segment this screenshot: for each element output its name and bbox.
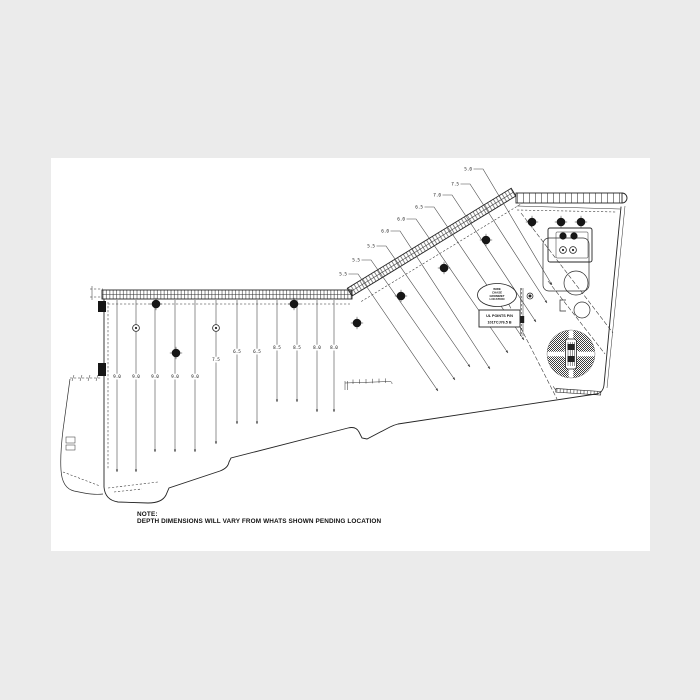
fastener-head <box>353 319 362 328</box>
plug-icon <box>559 232 566 239</box>
technical-drawing: 9.09.09.09.09.07.56.56.58.58.58.08.0 5.5… <box>0 0 700 700</box>
ul-points-badge: UL POINTS P/N 101TCJ76.5 B <box>479 310 520 327</box>
drawing-canvas: 9.09.09.09.09.07.56.56.58.58.58.08.0 5.5… <box>0 0 700 700</box>
fastener-icon <box>395 290 407 302</box>
glove-box <box>543 228 592 291</box>
left-flap <box>61 375 158 494</box>
right-rail-dashed <box>517 210 617 212</box>
right-rail-bar <box>516 193 622 203</box>
depth-label: 7.0 <box>433 193 441 199</box>
fastener-head <box>440 264 449 273</box>
wire-grommet-badge: WIRE CHASE GROMMET LOCATION <box>478 284 517 307</box>
dimension-line: 9.0 <box>170 300 180 452</box>
dimension-line: 8.5 <box>272 300 282 402</box>
panel-right-edge-outer <box>607 206 625 388</box>
depth-label: 5.5 <box>339 272 347 278</box>
floor-leader-dashed <box>108 482 158 492</box>
flap-bracket-top <box>66 437 75 443</box>
flap-outline <box>61 379 103 494</box>
depth-label: 7.5 <box>451 182 459 188</box>
depth-label: 6.5 <box>253 349 261 355</box>
fastener-head <box>528 218 537 227</box>
depth-label: 8.0 <box>330 345 338 351</box>
fastener-head <box>290 300 299 309</box>
note: NOTE: DEPTH DIMENSIONS WILL VARY FROM WH… <box>137 511 381 525</box>
grommet-center <box>572 249 574 251</box>
speaker-terminal-bottom <box>568 356 575 362</box>
speaker-terminal-top <box>568 344 575 350</box>
fastener-head <box>152 300 161 309</box>
ruler-ticks <box>353 378 386 384</box>
flap-bracket-bottom <box>66 445 75 450</box>
depth-label: 9.0 <box>113 374 121 380</box>
grommet-center <box>562 249 564 251</box>
dimension-line: 9.0 <box>150 300 160 452</box>
grommet-icon <box>133 325 140 332</box>
fastener-icon <box>150 298 162 310</box>
cup-holder-circle <box>564 271 588 295</box>
note-title: NOTE: <box>137 511 381 518</box>
depth-label: 6.5 <box>415 205 423 211</box>
depth-label: 5.5 <box>352 258 360 264</box>
depth-label: 9.0 <box>171 374 179 380</box>
fastener-icon <box>288 298 300 310</box>
ruler-body <box>345 381 392 390</box>
badge-line: 101TCJ76.5 B <box>488 321 512 325</box>
fastener-head <box>482 236 491 245</box>
scale-ruler <box>345 378 392 390</box>
dimension-line: 6.5 <box>252 300 262 424</box>
dimension-line: 6.0 <box>381 229 490 369</box>
fastener-icon <box>438 262 450 274</box>
fastener-icon <box>351 317 363 329</box>
left-dimension-group: 9.09.09.09.09.07.56.56.58.58.58.08.0 <box>112 300 339 472</box>
top-right-rail <box>516 193 627 212</box>
dimension-line: 5.0 <box>464 167 552 285</box>
dimension-line: 7.5 <box>211 300 221 444</box>
fastener-icon <box>170 347 182 359</box>
depth-label: 7.5 <box>212 357 220 363</box>
dimension-line: 8.5 <box>292 300 302 402</box>
depth-label: 5.5 <box>367 244 375 250</box>
depth-label: 8.5 <box>293 345 301 351</box>
dim-leader <box>391 231 491 369</box>
dim-leader <box>474 169 553 285</box>
dimension-line: 8.0 <box>329 300 339 412</box>
right-rail-inner-line <box>517 206 620 209</box>
fastener-head <box>172 349 181 358</box>
dimension-line: 9.0 <box>112 300 122 472</box>
badge-line: UL POINTS P/N <box>486 314 513 318</box>
edge-clip-bottom <box>98 363 106 376</box>
note-body: DEPTH DIMENSIONS WILL VARY FROM WHATS SH… <box>137 518 381 525</box>
grommet-icon <box>560 247 567 254</box>
depth-label: 6.0 <box>397 217 405 223</box>
fastener-head <box>577 218 586 227</box>
depth-label: 9.0 <box>191 374 199 380</box>
grommet-icon <box>570 247 577 254</box>
panel-outline-path <box>104 207 621 503</box>
dimension-line: 8.0 <box>312 300 322 412</box>
dimension-line: 9.0 <box>190 300 200 452</box>
plug-icon <box>570 232 577 239</box>
small-circle-cutout <box>574 302 590 318</box>
depth-label: 5.0 <box>464 167 472 173</box>
fastener-icon <box>575 216 587 228</box>
right-panel <box>500 213 613 399</box>
depth-label: 8.0 <box>313 345 321 351</box>
depth-label: 6.5 <box>233 349 241 355</box>
grommet-icon <box>213 325 220 332</box>
grommet-center <box>215 327 217 329</box>
depth-label: 9.0 <box>132 374 140 380</box>
dimension-line: 6.5 <box>232 300 242 424</box>
fastener-icon <box>480 234 492 246</box>
fold-line-1 <box>521 213 613 333</box>
datum-center <box>529 295 532 298</box>
depth-label: 9.0 <box>151 374 159 380</box>
flap-inner-dashed <box>63 472 100 486</box>
depth-label: 8.5 <box>273 345 281 351</box>
depth-label: 6.0 <box>381 229 389 235</box>
speaker-grille <box>545 328 597 380</box>
fastener-icon <box>526 216 538 228</box>
badge-line: LOCATION <box>490 297 505 301</box>
datum-marker-icon <box>527 293 533 299</box>
edge-clip-top <box>98 301 106 312</box>
grommet-center <box>135 327 137 329</box>
fastener-head <box>557 218 566 227</box>
right-rail-end-cap <box>622 193 627 203</box>
fastener-head <box>397 292 406 301</box>
dimension-line: 5.5 <box>367 244 470 367</box>
bracket-symbol <box>560 300 566 311</box>
fastener-icon <box>555 216 567 228</box>
bottom-trim-strip <box>553 386 601 395</box>
